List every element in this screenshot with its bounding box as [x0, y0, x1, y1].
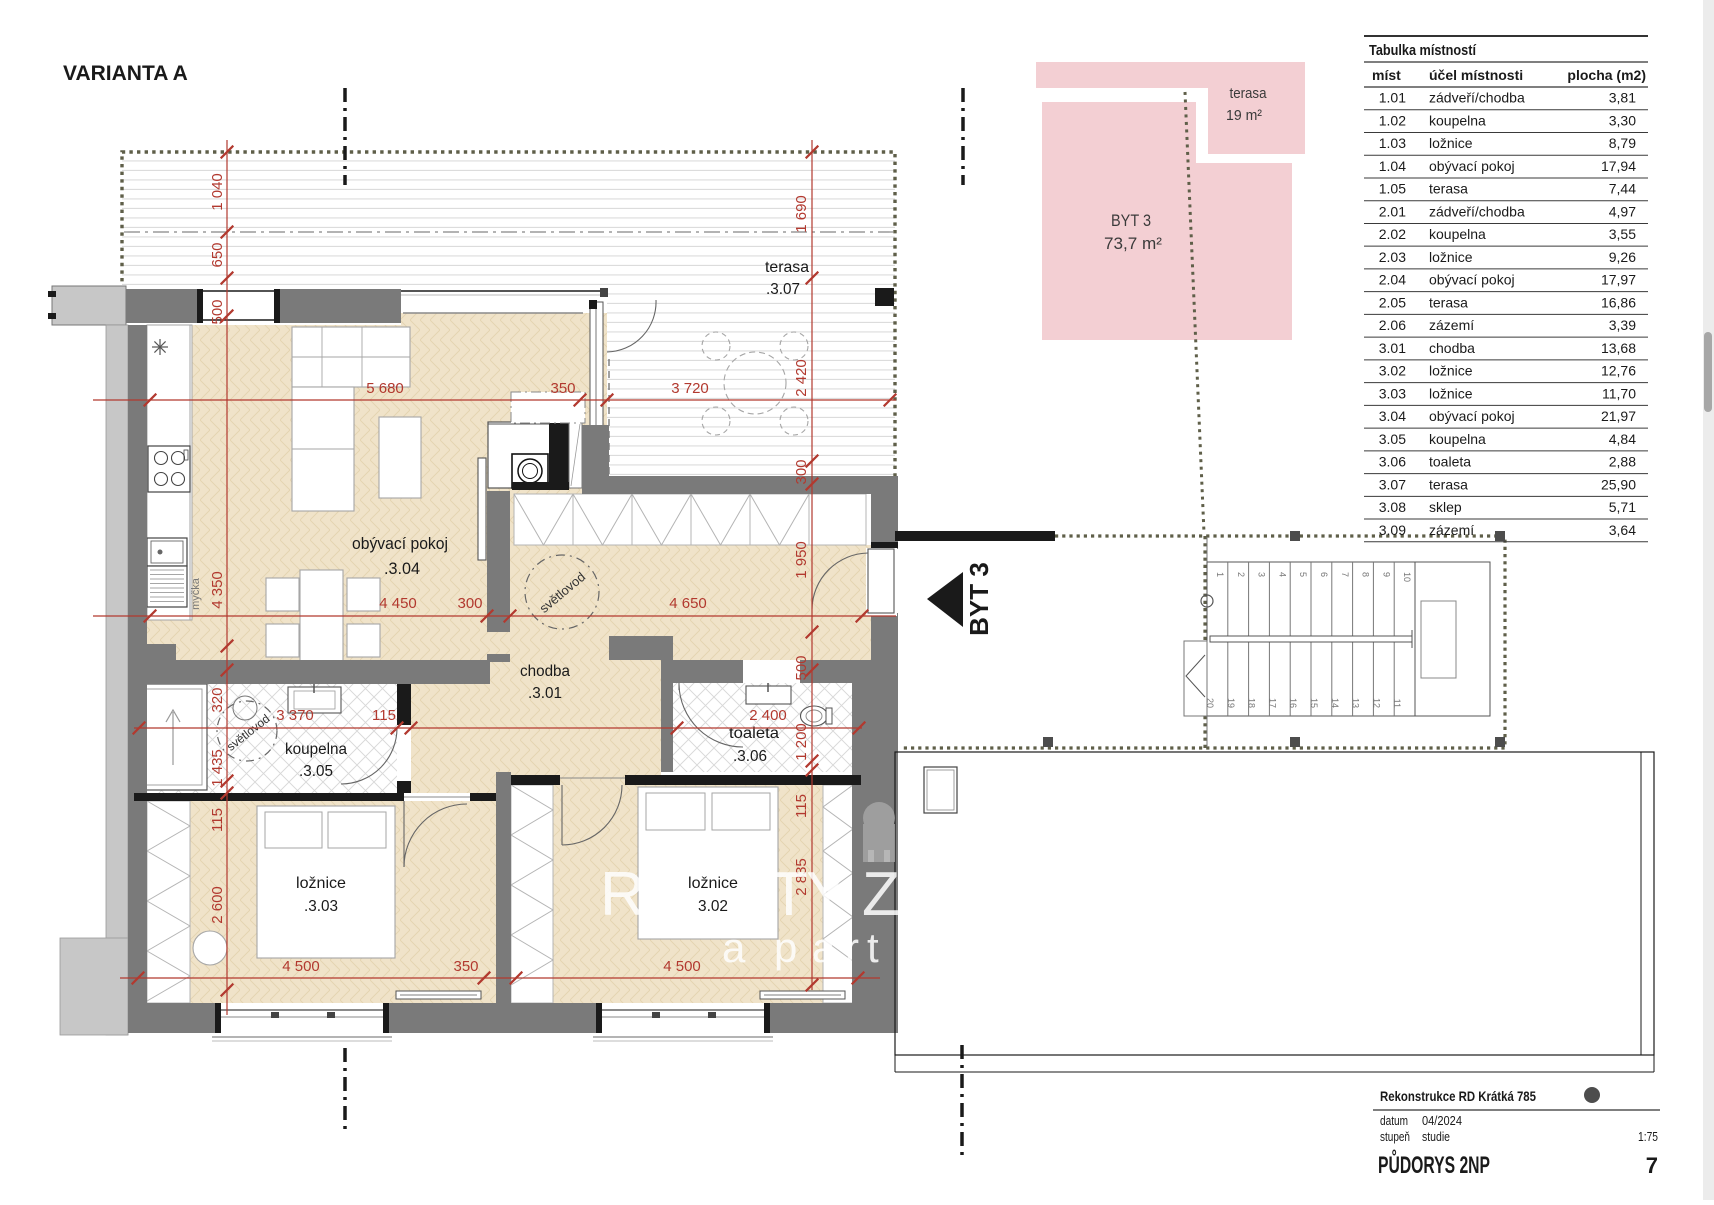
svg-text:sklep: sklep [1429, 499, 1462, 515]
svg-text:Tabulka místností: Tabulka místností [1369, 42, 1477, 59]
svg-text:koupelna: koupelna [1429, 431, 1486, 447]
svg-text:2.04: 2.04 [1379, 272, 1406, 288]
svg-text:PŮDORYS 2NP: PŮDORYS 2NP [1378, 1149, 1490, 1179]
svg-text:a: a [812, 924, 836, 971]
svg-text:koupelna: koupelna [1429, 112, 1486, 128]
svg-text:3.02: 3.02 [698, 898, 728, 915]
svg-text:4 500: 4 500 [663, 958, 701, 975]
svg-text:350: 350 [550, 380, 575, 397]
svg-text:1.02: 1.02 [1379, 112, 1406, 128]
svg-text:9,26: 9,26 [1609, 249, 1636, 265]
svg-text:1 040: 1 040 [209, 173, 226, 211]
svg-text:ložnice: ložnice [1429, 135, 1473, 151]
svg-text:3.08: 3.08 [1379, 499, 1406, 515]
svg-text:14: 14 [1330, 698, 1340, 708]
svg-text:2.01: 2.01 [1379, 203, 1406, 219]
svg-text:.3.04: .3.04 [384, 559, 420, 578]
svg-text:obývací pokoj: obývací pokoj [1429, 272, 1515, 288]
svg-text:zázemí: zázemí [1429, 522, 1474, 538]
svg-text:3,30: 3,30 [1609, 112, 1636, 128]
svg-text:1.04: 1.04 [1379, 158, 1406, 174]
svg-text:chodba: chodba [1429, 340, 1475, 356]
svg-text:míst: míst [1372, 67, 1401, 83]
svg-text:17,94: 17,94 [1601, 158, 1636, 174]
svg-text:4,84: 4,84 [1609, 431, 1636, 447]
svg-text:350: 350 [453, 958, 478, 975]
svg-text:5: 5 [1298, 572, 1308, 577]
svg-text:25,90: 25,90 [1601, 476, 1636, 492]
svg-text:4: 4 [1277, 572, 1287, 577]
svg-text:1 950: 1 950 [793, 541, 810, 579]
svg-text:terasa: terasa [765, 259, 809, 276]
svg-text:3: 3 [1257, 572, 1267, 577]
svg-text:plocha (m2): plocha (m2) [1567, 67, 1646, 83]
svg-text:16: 16 [1288, 698, 1298, 708]
svg-text:5 680: 5 680 [366, 380, 404, 397]
svg-text:4 350: 4 350 [209, 571, 226, 609]
svg-text:ložnice: ložnice [296, 875, 346, 892]
svg-text:3.05: 3.05 [1379, 431, 1406, 447]
svg-text:3.07: 3.07 [1379, 476, 1406, 492]
svg-text:1.01: 1.01 [1379, 90, 1406, 106]
svg-text:3,81: 3,81 [1609, 90, 1636, 106]
svg-text:R: R [600, 860, 645, 929]
svg-text:.3.06: .3.06 [733, 748, 767, 765]
svg-text:2.02: 2.02 [1379, 226, 1406, 242]
svg-text:3.01: 3.01 [1379, 340, 1406, 356]
svg-text:17: 17 [1267, 698, 1277, 708]
svg-text:3 370: 3 370 [276, 707, 314, 724]
svg-text:300: 300 [793, 459, 810, 484]
svg-text:2 400: 2 400 [749, 707, 787, 724]
svg-text:19 m²: 19 m² [1226, 107, 1262, 124]
svg-text:1.03: 1.03 [1379, 135, 1406, 151]
svg-text:p: p [774, 924, 797, 971]
svg-text:.3.03: .3.03 [304, 898, 338, 915]
svg-text:VARIANTA A: VARIANTA A [63, 62, 188, 85]
svg-text:7: 7 [1340, 572, 1350, 577]
svg-text:Y: Y [806, 860, 847, 929]
svg-text:Rekonstrukce RD Krátká 785: Rekonstrukce RD Krátká 785 [1380, 1088, 1536, 1104]
svg-text:2 420: 2 420 [793, 359, 810, 397]
svg-text:ložnice: ložnice [688, 875, 738, 892]
svg-text:12: 12 [1371, 698, 1381, 708]
svg-text:1 200: 1 200 [793, 723, 810, 761]
svg-text:115: 115 [209, 808, 226, 832]
svg-text:4 450: 4 450 [379, 595, 417, 612]
svg-text:115: 115 [793, 794, 810, 818]
svg-text:4,97: 4,97 [1609, 203, 1636, 219]
svg-text:3.04: 3.04 [1379, 408, 1406, 424]
svg-text:8: 8 [1361, 572, 1371, 577]
svg-text:obývací pokoj: obývací pokoj [1429, 408, 1515, 424]
svg-text:2.06: 2.06 [1379, 317, 1406, 333]
svg-text:3.06: 3.06 [1379, 454, 1406, 470]
svg-text:500: 500 [793, 655, 810, 680]
svg-text:4 500: 4 500 [282, 958, 320, 975]
svg-text:terasa: terasa [1230, 85, 1268, 102]
svg-text:3.09: 3.09 [1379, 522, 1406, 538]
svg-text:toaleta: toaleta [1429, 454, 1471, 470]
svg-text:3.02: 3.02 [1379, 363, 1406, 379]
svg-text:3,64: 3,64 [1609, 522, 1636, 538]
svg-text:myčka: myčka [190, 577, 202, 610]
svg-text:11,70: 11,70 [1602, 385, 1636, 401]
svg-text:BYT 3: BYT 3 [1111, 211, 1151, 230]
svg-text:BYT 3: BYT 3 [964, 562, 994, 636]
svg-text:ložnice: ložnice [1429, 385, 1473, 401]
svg-text:115: 115 [372, 707, 396, 724]
svg-text:a: a [722, 924, 746, 971]
svg-text:3.03: 3.03 [1379, 385, 1406, 401]
svg-text:10: 10 [1402, 572, 1412, 582]
svg-text:16,86: 16,86 [1601, 294, 1636, 310]
svg-text:1:75: 1:75 [1638, 1129, 1658, 1144]
svg-text:účel místnosti: účel místnosti [1429, 67, 1523, 83]
svg-text:3 720: 3 720 [671, 380, 709, 397]
svg-text:.3.01: .3.01 [528, 685, 562, 702]
svg-text:stupeň: stupeň [1380, 1129, 1410, 1144]
svg-text:19: 19 [1226, 698, 1236, 708]
svg-text:13,68: 13,68 [1601, 340, 1636, 356]
svg-text:4 650: 4 650 [669, 595, 707, 612]
svg-text:t: t [867, 924, 879, 971]
svg-text:datum: datum [1380, 1113, 1408, 1128]
svg-text:1: 1 [1215, 572, 1225, 577]
svg-text:studie: studie [1422, 1129, 1450, 1144]
svg-text:300: 300 [457, 595, 482, 612]
svg-text:T: T [770, 860, 808, 929]
svg-text:320: 320 [209, 687, 226, 712]
svg-text:zádveří/chodba: zádveří/chodba [1429, 203, 1525, 219]
svg-text:r: r [845, 924, 859, 971]
svg-text:koupelna: koupelna [1429, 226, 1486, 242]
svg-text:18: 18 [1247, 698, 1257, 708]
svg-text:obývací pokoj: obývací pokoj [352, 534, 448, 553]
svg-text:.3.05: .3.05 [299, 763, 333, 780]
svg-text:1.05: 1.05 [1379, 181, 1406, 197]
svg-text:1 435: 1 435 [209, 749, 226, 787]
svg-text:20: 20 [1205, 698, 1215, 708]
svg-text:chodba: chodba [520, 663, 570, 680]
svg-text:.3.07: .3.07 [766, 281, 800, 298]
svg-text:2 600: 2 600 [209, 886, 226, 924]
svg-text:5,71: 5,71 [1609, 499, 1636, 515]
svg-text:3,55: 3,55 [1609, 226, 1636, 242]
svg-text:21,97: 21,97 [1601, 408, 1636, 424]
svg-text:terasa: terasa [1429, 294, 1468, 310]
svg-text:obývací pokoj: obývací pokoj [1429, 158, 1515, 174]
svg-text:2.03: 2.03 [1379, 249, 1406, 265]
svg-text:2.05: 2.05 [1379, 294, 1406, 310]
svg-text:9: 9 [1381, 572, 1391, 577]
svg-text:17,97: 17,97 [1601, 272, 1636, 288]
svg-text:ložnice: ložnice [1429, 363, 1473, 379]
svg-text:2,88: 2,88 [1609, 454, 1636, 470]
svg-text:73,7 m²: 73,7 m² [1104, 234, 1162, 253]
svg-text:2: 2 [1236, 572, 1246, 577]
svg-text:terasa: terasa [1429, 476, 1468, 492]
svg-text:ložnice: ložnice [1429, 249, 1473, 265]
svg-text:04/2024: 04/2024 [1422, 1113, 1462, 1128]
svg-text:3,39: 3,39 [1609, 317, 1636, 333]
svg-text:8,79: 8,79 [1609, 135, 1636, 151]
svg-text:650: 650 [209, 242, 226, 267]
svg-text:zádveří/chodba: zádveří/chodba [1429, 90, 1525, 106]
svg-text:12,76: 12,76 [1601, 363, 1636, 379]
svg-text:zázemí: zázemí [1429, 317, 1474, 333]
svg-text:7,44: 7,44 [1609, 181, 1636, 197]
svg-text:13: 13 [1351, 698, 1361, 708]
svg-text:15: 15 [1309, 698, 1319, 708]
svg-text:7: 7 [1646, 1153, 1658, 1178]
svg-text:terasa: terasa [1429, 181, 1468, 197]
svg-text:1 690: 1 690 [793, 195, 810, 233]
svg-text:Z: Z [862, 860, 900, 929]
svg-text:6: 6 [1319, 572, 1329, 577]
svg-text:koupelna: koupelna [285, 741, 347, 758]
svg-text:11: 11 [1392, 699, 1402, 708]
svg-text:500: 500 [209, 299, 226, 324]
